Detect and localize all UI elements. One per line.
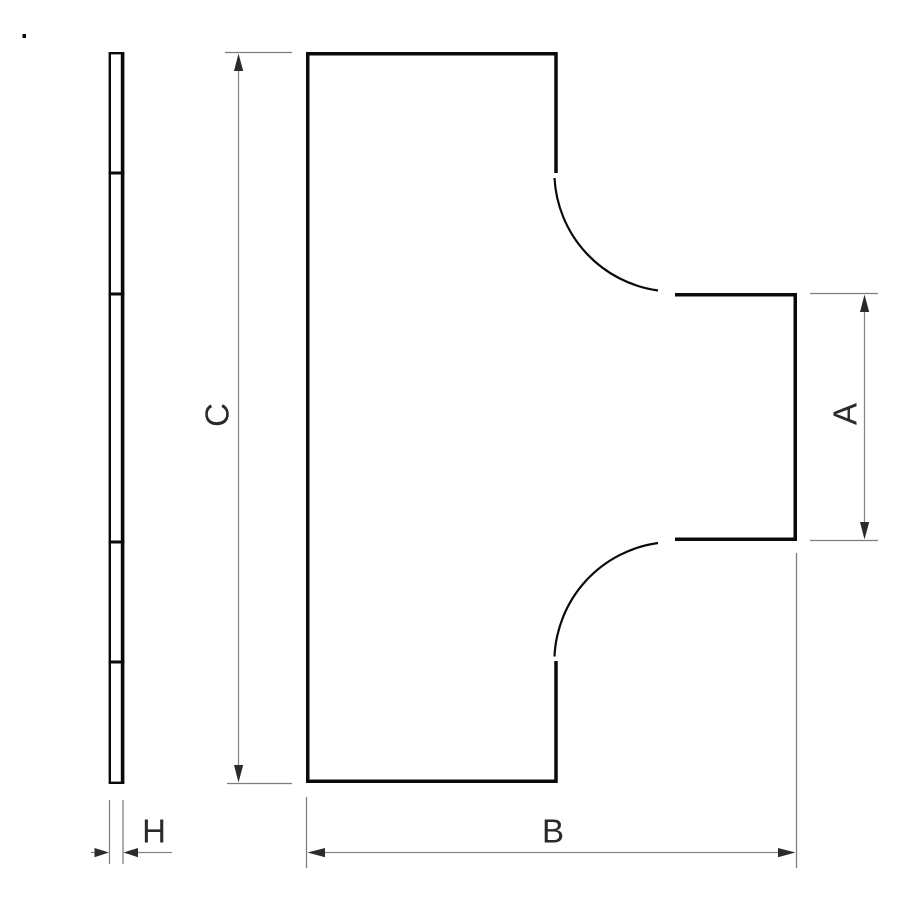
dimension-overall-height: C — [199, 53, 293, 784]
dimension-thickness: H — [91, 800, 172, 864]
dim-a-arrow-down — [860, 522, 869, 540]
body-outline — [308, 54, 556, 782]
technical-drawing-canvas: C A B H — [0, 0, 900, 900]
dim-a-arrow-up — [860, 295, 869, 313]
main-view — [308, 54, 796, 782]
side-view-outline — [110, 53, 123, 783]
stray-dot — [23, 34, 27, 38]
dim-c-arrow-down — [234, 765, 243, 783]
fillet-arc-top — [555, 178, 659, 291]
dim-h-arrow-inward-left — [124, 848, 139, 857]
dim-b-label: B — [542, 813, 564, 850]
dim-b-arrow-left — [308, 848, 326, 857]
dim-c-arrow-up — [234, 54, 243, 72]
dim-h-arrow-inward-right — [95, 848, 110, 857]
dim-c-label: C — [199, 403, 236, 427]
branch-outline — [675, 295, 795, 540]
dim-a-label: A — [827, 403, 864, 425]
drawing-page: C A B H — [0, 0, 900, 900]
side-view — [109, 52, 125, 784]
dimension-branch-width: A — [810, 294, 878, 541]
dim-b-arrow-right — [778, 848, 796, 857]
dim-h-label: H — [142, 813, 166, 850]
dimension-overall-width: B — [307, 553, 797, 868]
fillet-arc-bottom — [555, 543, 659, 657]
